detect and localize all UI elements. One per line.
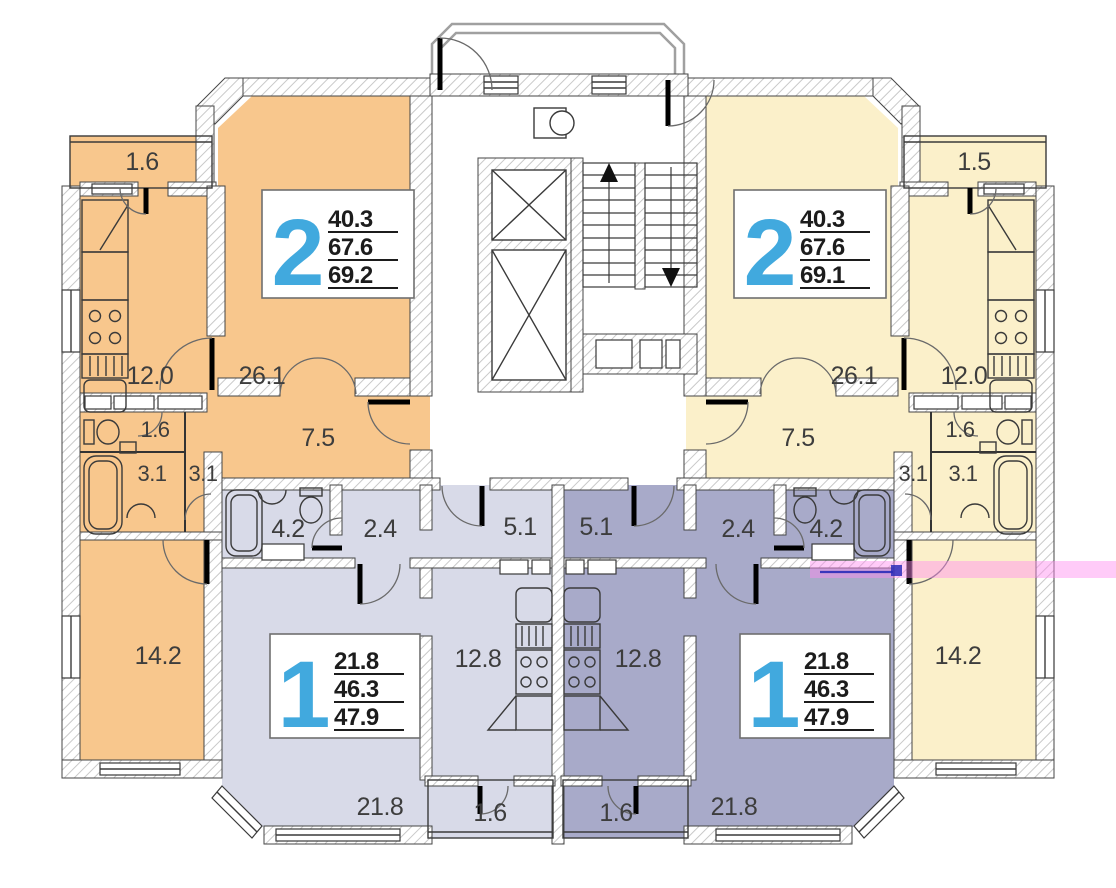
area-value: 40.3 <box>800 206 845 233</box>
room-label-kitchen-2l: 12.0 <box>127 362 174 390</box>
room-label-bath-1r: 4.2 <box>809 515 842 543</box>
stairs-down-arrow <box>662 268 680 287</box>
window-living-bottom-right <box>716 829 840 841</box>
room-label-wc-2l: 1.6 <box>140 417 169 442</box>
window-top-center-2 <box>592 76 626 94</box>
area-value: 69.2 <box>328 262 373 289</box>
room-label-hall-2r: 7.5 <box>781 424 814 452</box>
room-label-balcony-2l: 1.6 <box>125 148 158 176</box>
window-right-wall-kitchen <box>1036 290 1054 352</box>
room-label-balcony-1l: 1.6 <box>473 799 506 827</box>
room-label-balcony-1r: 1.6 <box>599 799 632 827</box>
room-label-hall2-2l: 3.1 <box>188 461 217 486</box>
garbage-chute <box>534 108 574 138</box>
room-label-hall-1r: 2.4 <box>721 515 755 543</box>
window-left-wall-bedroom <box>62 616 80 678</box>
apartment-type-number: 2 <box>744 200 797 306</box>
room-label-bath-2l: 3.1 <box>137 461 166 486</box>
highlight-pink-band <box>810 561 1116 578</box>
room-label-bath-2r: 3.1 <box>948 461 977 486</box>
room-label-entry-1l: 5.1 <box>503 513 536 541</box>
area-value: 67.6 <box>328 234 373 261</box>
room-label-balcony-2r: 1.5 <box>957 148 990 176</box>
area-value: 67.6 <box>800 234 845 261</box>
info-box-apartment-1-left[interactable]: 1 21.8 46.3 47.9 <box>270 634 420 748</box>
room-label-wc-2r: 1.6 <box>945 417 974 442</box>
area-value: 47.9 <box>334 704 379 731</box>
area-value: 69.1 <box>800 262 845 289</box>
area-value: 46.3 <box>334 676 379 703</box>
room-label-entry-1r: 5.1 <box>579 513 612 541</box>
room-label-hall2-2r: 3.1 <box>898 461 927 486</box>
room-label-hall-2l: 7.5 <box>301 424 334 452</box>
area-value: 21.8 <box>804 648 849 675</box>
room-label-living-2r: 26.1 <box>831 362 878 390</box>
highlight-navy-dot <box>891 565 902 576</box>
info-box-apartment-1-right[interactable]: 1 21.8 46.3 47.9 <box>740 634 890 748</box>
window-left-wall-kitchen <box>62 290 80 352</box>
area-value: 46.3 <box>804 676 849 703</box>
room-label-kitchen-1r: 12.8 <box>615 645 662 673</box>
room-label-bedroom-2r: 14.2 <box>935 642 982 670</box>
stairs-up-arrow <box>600 163 618 182</box>
room-label-living-1l: 21.8 <box>357 793 404 821</box>
window-bedroom-bottom-left <box>100 763 180 775</box>
apartment-type-number: 1 <box>748 642 801 748</box>
window-living-bottom-left <box>276 829 400 841</box>
apartment-type-number: 1 <box>278 642 331 748</box>
area-value: 40.3 <box>328 206 373 233</box>
room-label-bedroom-2l: 14.2 <box>135 642 182 670</box>
info-box-apartment-2-right[interactable]: 2 40.3 67.6 69.1 <box>734 190 886 306</box>
room-label-kitchen-2r: 12.0 <box>941 362 988 390</box>
elevator-large <box>492 250 566 380</box>
window-top-center-1 <box>484 76 518 94</box>
info-box-apartment-2-left[interactable]: 2 40.3 67.6 69.2 <box>262 190 414 306</box>
room-label-bath-1l: 4.2 <box>271 515 304 543</box>
window-balcony-right <box>984 184 1024 194</box>
apartment-type-number: 2 <box>272 200 325 306</box>
highlight-line <box>810 561 1116 578</box>
room-label-hall-1l: 2.4 <box>363 515 397 543</box>
room-label-living-1r: 21.8 <box>711 793 758 821</box>
elevator-small <box>492 170 566 240</box>
floor-plan: 1.6 12.0 26.1 7.5 1.6 3.1 3.1 14.2 1.5 1… <box>0 0 1116 888</box>
area-value: 47.9 <box>804 704 849 731</box>
area-value: 21.8 <box>334 648 379 675</box>
room-label-living-2l: 26.1 <box>239 362 286 390</box>
room-label-kitchen-1l: 12.8 <box>455 645 502 673</box>
floor-plan-page: 1.6 12.0 26.1 7.5 1.6 3.1 3.1 14.2 1.5 1… <box>0 0 1116 888</box>
window-bedroom-bottom-right <box>936 763 1016 775</box>
window-balcony-left <box>92 184 132 194</box>
window-right-wall-bedroom <box>1036 616 1054 678</box>
